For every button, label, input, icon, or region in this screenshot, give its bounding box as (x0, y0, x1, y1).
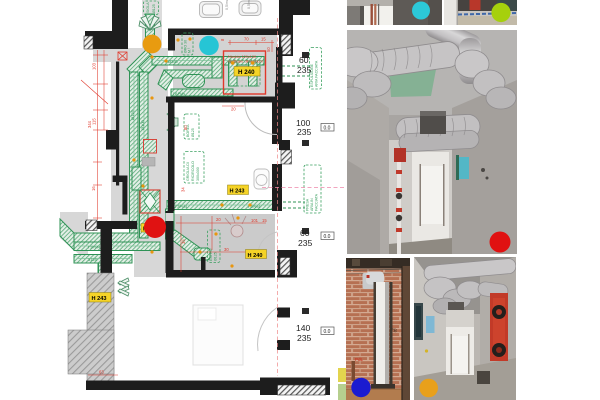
svg-text:103: 103 (92, 62, 97, 70)
svg-text:80: 80 (183, 125, 188, 130)
svg-text:Ø160: Ø160 (168, 59, 179, 64)
svg-text:60: 60 (299, 55, 309, 65)
svg-text:ESTRO: ESTRO (209, 248, 213, 261)
svg-text:140: 140 (296, 323, 311, 333)
svg-text:70: 70 (244, 37, 249, 42)
svg-text:235: 235 (297, 333, 312, 343)
svg-text:3125: 3125 (88, 257, 98, 262)
svg-text:H 240: H 240 (248, 253, 263, 259)
svg-text:H 240: H 240 (238, 69, 255, 76)
svg-text:235: 235 (298, 238, 313, 248)
svg-text:0,5/mq: 0,5/mq (247, 0, 251, 9)
svg-text:15: 15 (261, 37, 266, 42)
svg-text:ARIA IN: ARIA IN (310, 198, 314, 211)
svg-text:50: 50 (266, 47, 271, 52)
svg-text:20: 20 (231, 107, 236, 112)
svg-text:20: 20 (216, 217, 221, 222)
svg-text:63: 63 (99, 370, 104, 375)
svg-text:0,5/mq: 0,5/mq (225, 0, 229, 10)
svg-text:0.0: 0.0 (324, 329, 331, 335)
svg-text:PdL: PdL (355, 357, 364, 362)
svg-text:SIGLA: SIGLA (146, 2, 150, 13)
svg-text:30: 30 (224, 247, 229, 252)
svg-text:16: 16 (91, 186, 96, 191)
svg-text:Ø125: Ø125 (130, 109, 135, 120)
svg-text:M.²: M.² (188, 47, 192, 53)
svg-text:34: 34 (181, 187, 186, 192)
svg-text:35: 35 (181, 239, 186, 244)
svg-text:235: 235 (297, 65, 312, 75)
svg-text:0.0: 0.0 (324, 126, 331, 132)
svg-text:15: 15 (262, 218, 267, 223)
svg-text:H 243: H 243 (230, 189, 245, 195)
svg-text:RICIRCOLO: RICIRCOLO (191, 161, 195, 181)
svg-text:0.0: 0.0 (324, 234, 331, 240)
svg-text:ГЗРИ4: ГЗРИ4 (88, 245, 101, 250)
svg-text:Ø125: Ø125 (191, 128, 195, 137)
svg-text:101: 101 (251, 218, 259, 223)
svg-text:115: 115 (92, 118, 97, 125)
svg-text:60: 60 (300, 228, 310, 238)
svg-text:344: 344 (87, 120, 92, 128)
svg-text:Ø100: Ø100 (140, 119, 145, 130)
svg-text:ГАРИч: ГАРИч (173, 91, 185, 96)
svg-text:Nicchia 120x120: Nicchia 120x120 (228, 55, 256, 59)
svg-text:ГЗРИ4: ГЗРИ4 (175, 204, 188, 209)
svg-text:235: 235 (297, 127, 312, 137)
svg-text:GRIGLIA DI: GRIGLIA DI (186, 162, 190, 181)
svg-text:300x300: 300x300 (196, 167, 200, 181)
svg-text:Ø125: Ø125 (152, 4, 156, 13)
svg-text:H 243: H 243 (92, 296, 107, 302)
svg-text:PRESA: PRESA (306, 198, 310, 211)
svg-text:Ø125: Ø125 (214, 252, 218, 261)
svg-text:FACCIATA: FACCIATA (315, 193, 319, 211)
svg-text:ARIA FACCIATA: ARIA FACCIATA (315, 60, 319, 87)
